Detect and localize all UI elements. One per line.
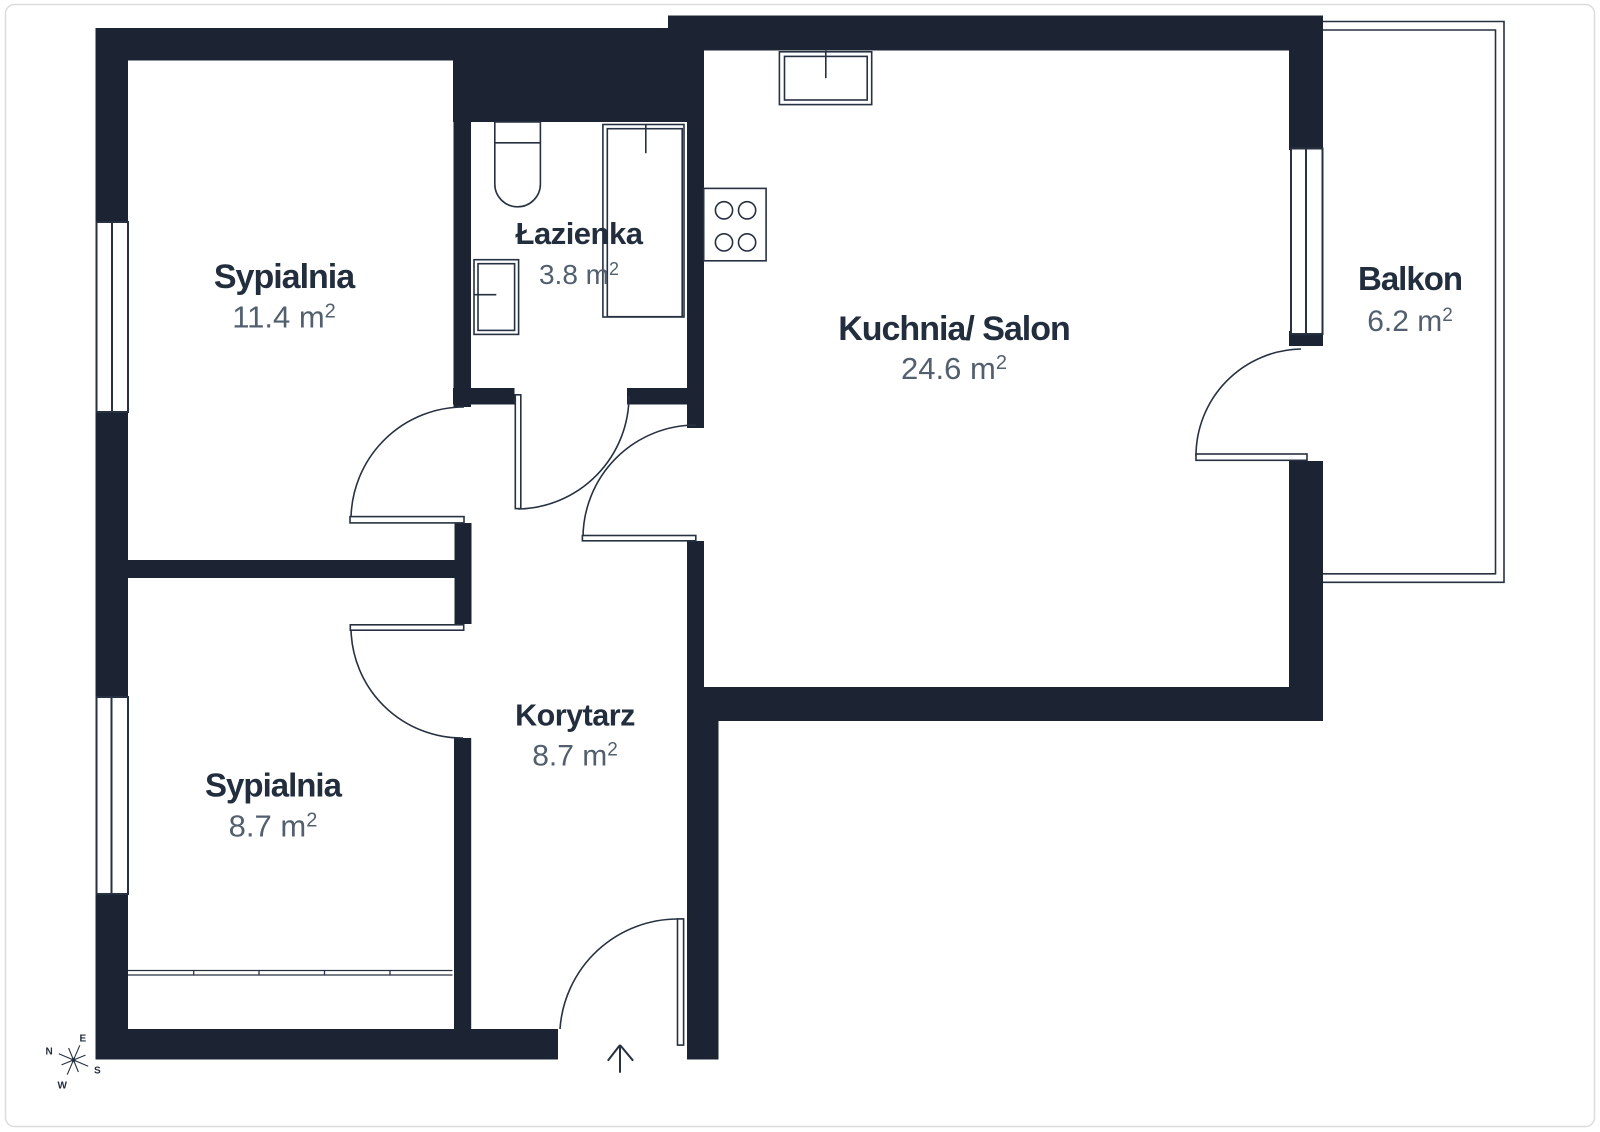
svg-text:Łazienka: Łazienka (516, 216, 644, 251)
svg-text:Sypialnia: Sypialnia (214, 258, 356, 296)
svg-text:E: E (80, 1034, 87, 1045)
svg-text:N: N (46, 1047, 53, 1058)
svg-text:Kuchnia/ Salon: Kuchnia/ Salon (838, 310, 1070, 348)
svg-text:8.7 m2: 8.7 m2 (229, 809, 318, 844)
svg-text:W: W (58, 1081, 68, 1092)
svg-text:S: S (94, 1066, 101, 1077)
svg-text:Korytarz: Korytarz (515, 699, 635, 733)
svg-text:Sypialnia: Sypialnia (205, 767, 343, 804)
svg-text:Balkon: Balkon (1358, 260, 1462, 297)
svg-text:6.2 m2: 6.2 m2 (1367, 305, 1453, 338)
svg-text:24.6 m2: 24.6 m2 (901, 351, 1007, 386)
svg-text:11.4 m2: 11.4 m2 (232, 300, 336, 335)
svg-text:8.7 m2: 8.7 m2 (532, 739, 618, 772)
svg-text:3.8 m2: 3.8 m2 (539, 259, 619, 290)
